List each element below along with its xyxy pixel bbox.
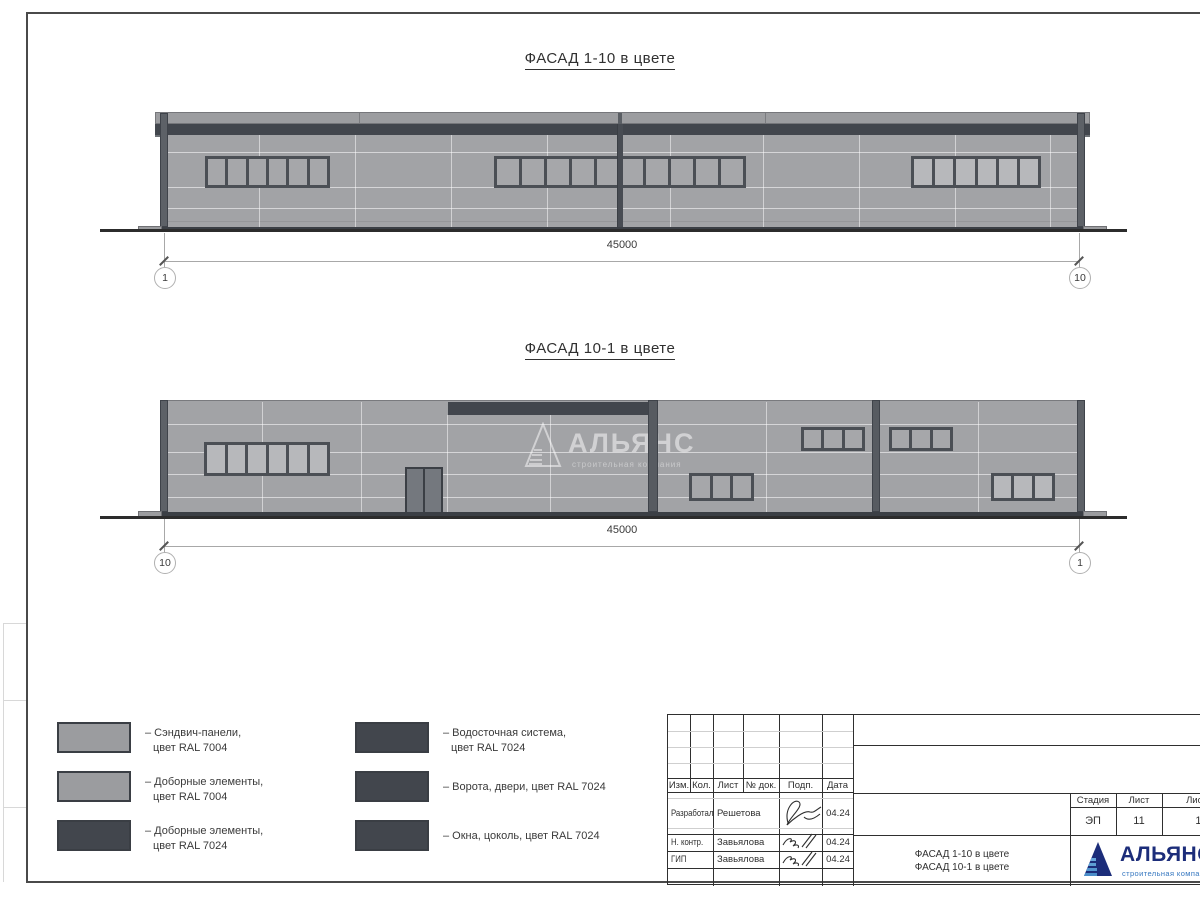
axis-marker-10: 10 xyxy=(154,552,176,574)
logo-triangle-icon xyxy=(1083,841,1113,877)
col-podp: Подп. xyxy=(779,778,822,792)
downspout-funnel xyxy=(618,113,622,124)
legend-swatch xyxy=(57,722,131,753)
row-date: 04.24 xyxy=(823,792,853,834)
legend-label: – Доборные элементы,цвет RAL 7004 xyxy=(145,775,263,805)
axis-marker-1: 1 xyxy=(154,267,176,289)
title-block: Изм. Кол. Лист № док. Подп. Дата Разрабо… xyxy=(667,714,1200,885)
legend-swatch xyxy=(57,820,131,851)
small-window-lower-1 xyxy=(689,473,754,501)
stage-value: ЭП xyxy=(1070,807,1116,835)
small-window-lower-2 xyxy=(991,473,1055,501)
facade-1-10-drawing xyxy=(160,112,1085,232)
legend-label: – Сэндвич-панели,цвет RAL 7004 xyxy=(145,726,241,756)
facade-10-1-title: ФАСАД 10-1 в цвете xyxy=(0,340,1200,357)
legend-swatch xyxy=(57,771,131,802)
gate-header-band xyxy=(447,402,657,415)
legend-label: – Ворота, двери, цвет RAL 7024 xyxy=(443,780,606,795)
row-role: Разработал xyxy=(668,792,713,834)
small-window-upper-1 xyxy=(801,427,865,451)
row-date: 04.24 xyxy=(823,851,853,868)
legend-swatch xyxy=(355,722,429,753)
col-kol: Кол. xyxy=(690,778,713,792)
small-window-upper-2 xyxy=(889,427,953,451)
column-trim-2 xyxy=(872,400,880,512)
signature-icon xyxy=(780,795,822,833)
logo-subtitle: строительная компания xyxy=(1122,869,1200,878)
fold-mark xyxy=(3,623,26,624)
legend-label: – Доборные элементы,цвет RAL 7024 xyxy=(145,824,263,854)
facade-10-1-drawing: АЛЬЯНС строительная компания xyxy=(160,398,1085,518)
ground-line xyxy=(100,516,1127,519)
logo-name: АЛЬЯНС xyxy=(1120,843,1200,867)
row-name: Завьялова xyxy=(714,851,779,868)
corner-trim-right xyxy=(1077,113,1085,227)
ground-line xyxy=(100,229,1127,232)
dimension-value: 45000 xyxy=(572,524,672,536)
corner-trim-left xyxy=(160,113,168,227)
facade-1-10-title: ФАСАД 1-10 в цвете xyxy=(0,50,1200,67)
col-list2: Лист xyxy=(1116,793,1162,807)
legend-label: – Водосточная система,цвет RAL 7024 xyxy=(443,726,566,756)
sheets-total: 19 xyxy=(1162,807,1200,835)
axis-marker-1: 1 xyxy=(1069,552,1091,574)
fold-mark xyxy=(3,700,26,701)
legend-swatch xyxy=(355,771,429,802)
column-trim-1 xyxy=(648,400,658,512)
row-name: Завьялова xyxy=(714,834,779,851)
fold-mark xyxy=(3,807,26,808)
ribbon-window-left xyxy=(204,442,330,476)
col-ndok: № док. xyxy=(743,778,779,792)
fold-mark xyxy=(3,623,4,882)
roof-edge-strip xyxy=(155,112,1090,124)
sheet-number: 11 xyxy=(1116,807,1162,835)
entrance-door xyxy=(405,467,443,512)
legend-label: – Окна, цоколь, цвет RAL 7024 xyxy=(443,829,600,844)
axis-marker-10: 10 xyxy=(1069,267,1091,289)
row-role: ГИП xyxy=(668,851,713,868)
row-name: Решетова xyxy=(714,792,779,834)
corner-trim-left xyxy=(160,400,168,512)
signature-icon xyxy=(780,848,820,870)
col-listov: Листов xyxy=(1162,793,1200,807)
ribbon-window-left xyxy=(205,156,330,188)
dimension-value: 45000 xyxy=(572,239,672,251)
watermark-triangle-icon xyxy=(524,422,562,468)
row-date: 04.24 xyxy=(823,834,853,851)
col-data: Дата xyxy=(822,778,853,792)
col-izm: Изм. xyxy=(668,778,690,792)
downspout xyxy=(617,124,623,232)
col-list: Лист xyxy=(713,778,743,792)
sheet-name: ФАСАД 1-10 в цвете ФАСАД 10-1 в цвете xyxy=(854,835,1070,886)
row-role: Н. контр. xyxy=(668,834,713,851)
ribbon-window-right xyxy=(911,156,1041,188)
corner-trim-right xyxy=(1077,400,1085,512)
legend-swatch xyxy=(355,820,429,851)
col-stadiya: Стадия xyxy=(1070,793,1116,807)
